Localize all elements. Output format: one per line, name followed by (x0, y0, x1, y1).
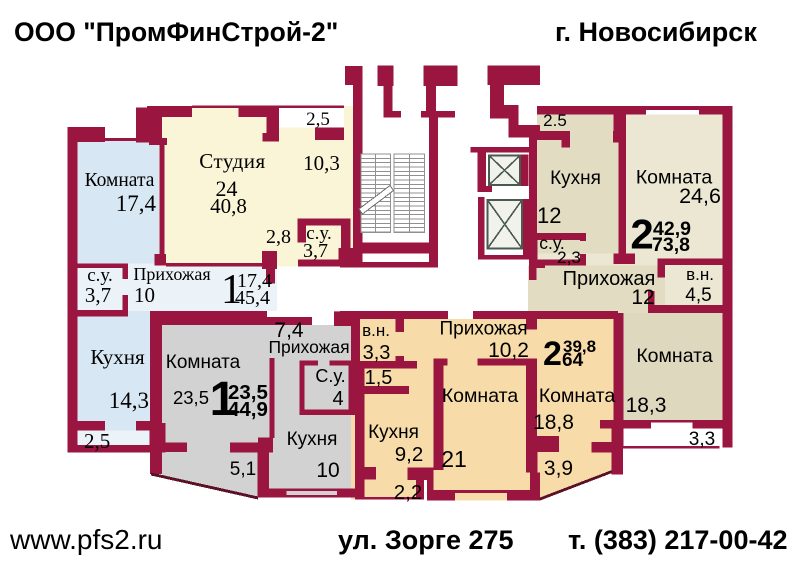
svg-text:Прихожая: Прихожая (439, 319, 527, 340)
svg-text:Комната: Комната (636, 345, 713, 367)
svg-text:3,7: 3,7 (85, 283, 111, 307)
svg-text:4: 4 (332, 388, 343, 410)
svg-text:3,3: 3,3 (689, 429, 715, 450)
svg-text:Кухня: Кухня (550, 168, 601, 189)
svg-text:2: 2 (543, 335, 562, 373)
svg-text:10: 10 (134, 283, 155, 307)
svg-text:1,5: 1,5 (365, 367, 393, 389)
svg-text:9,2: 9,2 (395, 443, 424, 466)
svg-text:3,3: 3,3 (363, 342, 391, 364)
svg-text:Комната: Комната (85, 170, 155, 191)
svg-text:т. (383) 217-00-42: т. (383) 217-00-42 (568, 525, 787, 555)
svg-text:2: 2 (630, 211, 653, 258)
svg-text:2,5: 2,5 (84, 429, 110, 453)
svg-text:3,7: 3,7 (303, 240, 328, 262)
svg-text:Кухня: Кухня (90, 345, 145, 369)
svg-text:23,5: 23,5 (173, 387, 209, 408)
svg-text:24,6: 24,6 (679, 184, 721, 208)
svg-text:2,2: 2,2 (394, 481, 423, 504)
svg-text:7,4: 7,4 (274, 319, 304, 342)
svg-text:Прихожая: Прихожая (133, 264, 210, 284)
svg-text:10: 10 (316, 459, 339, 482)
svg-text:Комната: Комната (539, 385, 616, 407)
svg-text:2,3: 2,3 (557, 248, 581, 267)
svg-text:10,2: 10,2 (488, 339, 529, 362)
svg-text:4,5: 4,5 (685, 285, 711, 306)
svg-text:12: 12 (631, 286, 654, 309)
svg-text:17,4: 17,4 (116, 191, 157, 216)
svg-text:в.н.: в.н. (686, 265, 714, 284)
svg-text:21: 21 (441, 446, 467, 472)
svg-text:ООО "ПромФинСтрой-2": ООО "ПромФинСтрой-2" (14, 17, 338, 47)
svg-text:Комната: Комната (442, 385, 519, 407)
svg-text:18,8: 18,8 (533, 411, 574, 434)
svg-text:3,9: 3,9 (544, 457, 573, 480)
svg-text:www.pfs2.ru: www.pfs2.ru (9, 524, 163, 555)
svg-text:18,3: 18,3 (626, 394, 667, 417)
svg-text:С.у.: С.у. (315, 366, 345, 386)
svg-text:2,8: 2,8 (266, 226, 291, 248)
svg-text:5,1: 5,1 (230, 459, 256, 480)
svg-text:2,5: 2,5 (306, 109, 330, 130)
svg-text:Студия: Студия (199, 149, 265, 173)
svg-text:73,8: 73,8 (652, 234, 690, 256)
svg-text:64: 64 (562, 350, 584, 371)
svg-text:45,4: 45,4 (235, 287, 270, 309)
svg-text:Комната: Комната (166, 352, 241, 373)
svg-text:Кухня: Кухня (368, 422, 419, 443)
svg-text:2.5: 2.5 (543, 111, 567, 130)
svg-text:44,9: 44,9 (228, 398, 268, 421)
svg-text:г. Новосибирск: г. Новосибирск (555, 17, 757, 47)
svg-text:12: 12 (537, 203, 561, 228)
svg-text:в.н.: в.н. (362, 321, 390, 340)
svg-text:Кухня: Кухня (287, 429, 338, 450)
svg-text:ул. Зорге 275: ул. Зорге 275 (338, 525, 514, 555)
svg-text:40,8: 40,8 (210, 194, 247, 218)
svg-text:14,3: 14,3 (109, 388, 149, 413)
svg-text:10,3: 10,3 (303, 151, 340, 175)
